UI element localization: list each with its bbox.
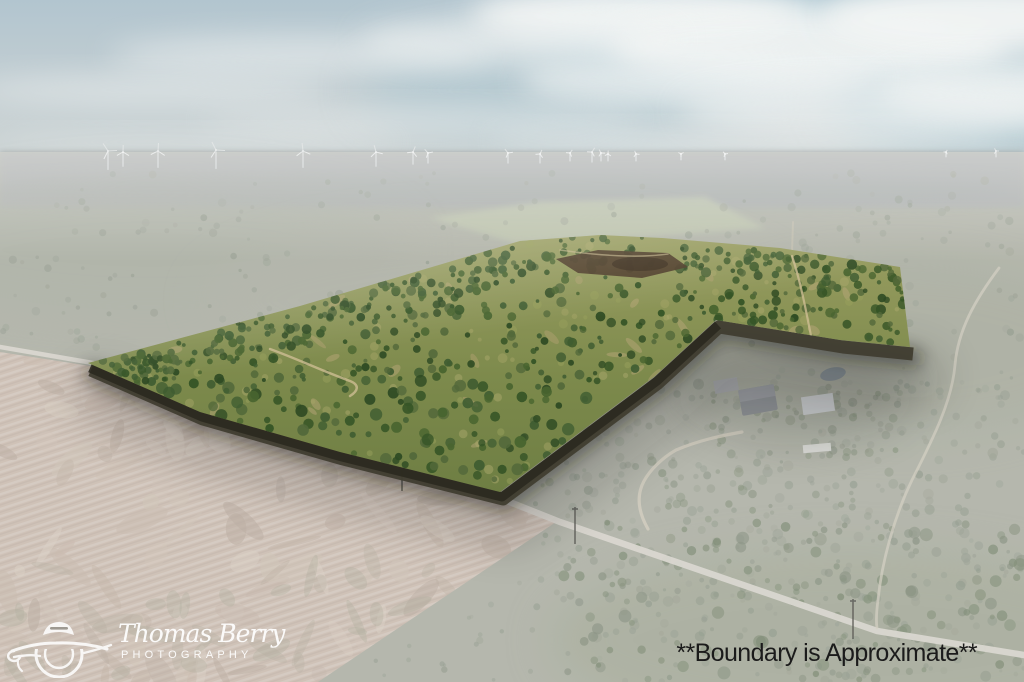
aerial-photo: Thomas Berry PHOTOGRAPHY **Boundary is A… xyxy=(0,0,1024,682)
boundary-disclaimer: **Boundary is Approximate** xyxy=(676,639,977,668)
aerial-scene xyxy=(0,0,1024,682)
